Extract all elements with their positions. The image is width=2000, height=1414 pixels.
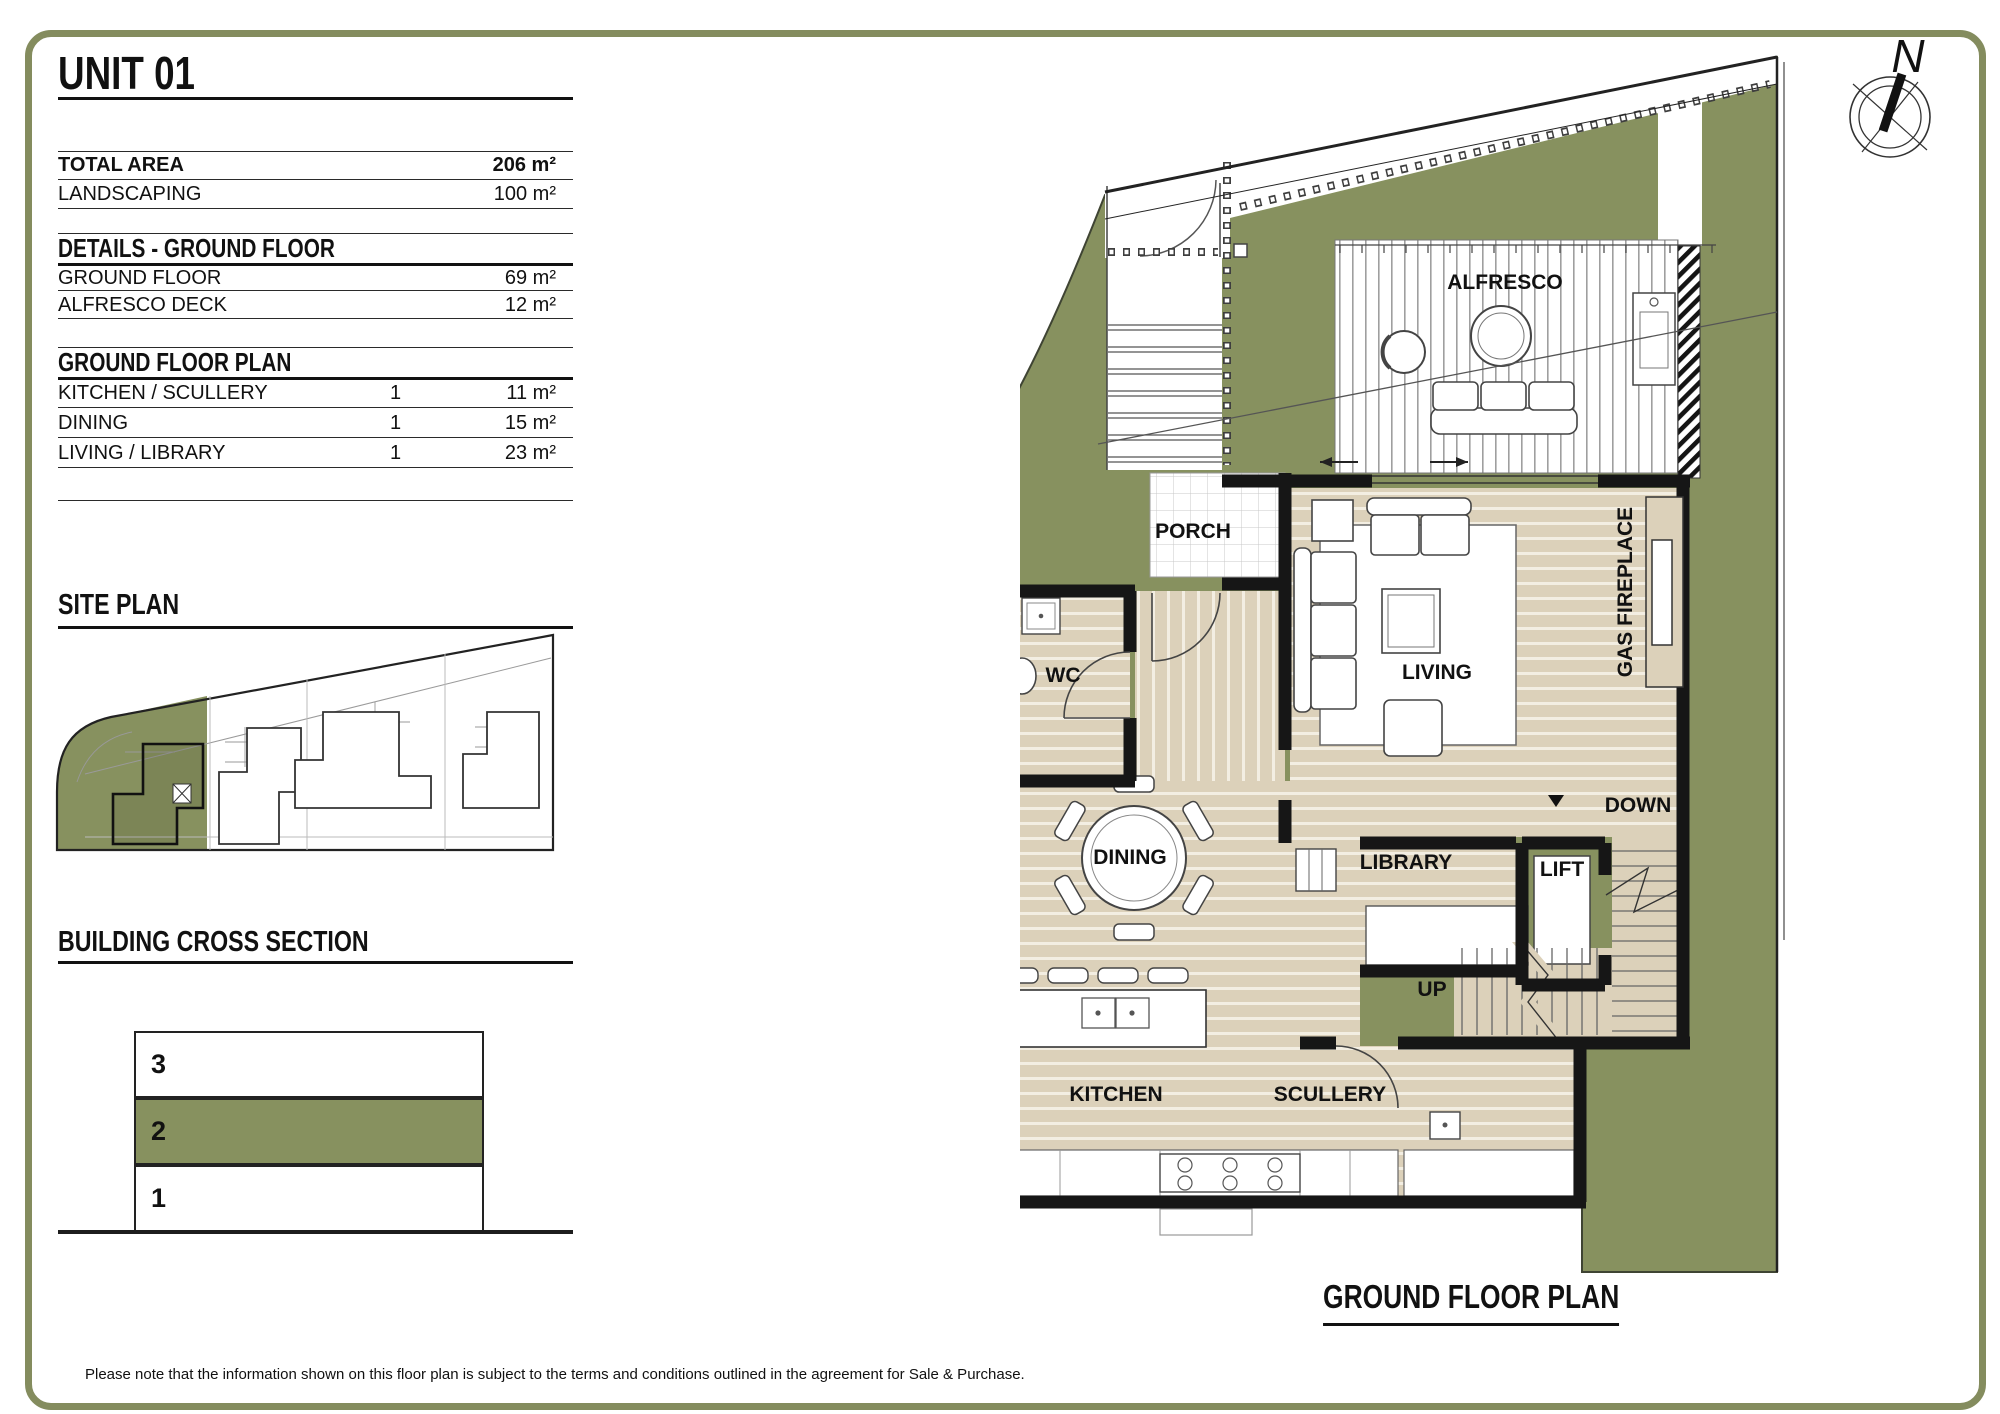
outdoor-sofa: [1431, 382, 1577, 434]
floor-plan-drawing: ALFRESCO PORCH WC LIVING GAS FIREPLACE D…: [1020, 40, 1960, 1290]
details-value: 69 m²: [505, 266, 556, 290]
schedule-header: GROUND FLOOR PLAN: [58, 347, 350, 378]
summary-value: 100 m²: [494, 182, 556, 206]
schedule-qty: 1: [390, 441, 401, 465]
cross-section-level-1: 1: [134, 1165, 484, 1232]
hall-floor: [1135, 591, 1285, 781]
details-label: ALFRESCO DECK: [58, 293, 227, 317]
kitchen-counter: [1020, 1150, 1398, 1196]
site-unit-3: [295, 712, 431, 808]
cross-section-drawing: 3 2 1: [134, 1031, 484, 1232]
fireplace: [1646, 497, 1683, 687]
title-underline: [58, 97, 573, 100]
schedule-value: 23 m²: [505, 441, 556, 465]
compass-n-label: N: [1891, 40, 1925, 82]
summary-label: TOTAL AREA: [58, 153, 184, 177]
rule: [58, 437, 573, 438]
schedule-value: 15 m²: [505, 411, 556, 435]
room-label-scullery: SCULLERY: [1274, 1083, 1386, 1106]
schedule-value: 11 m²: [506, 381, 556, 405]
kitchen-island: [1020, 990, 1206, 1047]
details-value: 12 m²: [505, 293, 556, 317]
room-label-porch: PORCH: [1155, 520, 1231, 543]
rule: [58, 500, 573, 501]
details-header: DETAILS - GROUND FLOOR: [58, 233, 404, 264]
external-bench: [1160, 1209, 1252, 1235]
details-row: GROUND FLOOR 69 m²: [58, 266, 556, 290]
rule: [58, 179, 573, 180]
footer-note: Please note that the information shown o…: [85, 1366, 1025, 1383]
floor-plan-title: GROUND FLOOR PLAN: [1286, 1278, 1646, 1326]
library-shelf: [1296, 849, 1336, 891]
cross-section-header: BUILDING CROSS SECTION: [58, 926, 446, 959]
room-label-library: LIBRARY: [1360, 851, 1453, 874]
brochure-page: UNIT 01 TOTAL AREA 206 m² LANDSCAPING 10…: [0, 0, 2000, 1414]
scullery-counter: [1404, 1150, 1574, 1196]
rule: [58, 377, 573, 380]
room-label-lift: LIFT: [1540, 858, 1584, 881]
room-label-wc: WC: [1046, 664, 1081, 687]
site-unit-2: [219, 728, 301, 844]
rule: [58, 626, 573, 629]
cross-section-level-2: 2: [134, 1098, 484, 1165]
unit-title: UNIT 01: [58, 46, 229, 100]
room-label-down: DOWN: [1605, 794, 1672, 817]
room-label-kitchen: KITCHEN: [1069, 1083, 1162, 1106]
schedule-label: KITCHEN / SCULLERY: [58, 381, 268, 405]
summary-row: LANDSCAPING 100 m²: [58, 182, 556, 206]
room-label-dining: DINING: [1093, 846, 1167, 869]
retaining-wall-hatch: [1678, 246, 1700, 478]
details-label: GROUND FLOOR: [58, 266, 221, 290]
rule: [58, 407, 573, 408]
summary-row: TOTAL AREA 206 m²: [58, 153, 556, 177]
rule: [58, 961, 573, 964]
rule: [58, 290, 573, 291]
down-stair-floor: [1612, 837, 1683, 1037]
outdoor-table: [1471, 306, 1531, 366]
schedule-row: LIVING / LIBRARY 1 23 m²: [58, 441, 556, 465]
rule: [58, 151, 573, 152]
schedule-qty: 1: [390, 381, 401, 405]
rule: [58, 467, 573, 468]
schedule-row: DINING 1 15 m²: [58, 411, 556, 435]
site-unit-4: [463, 712, 539, 808]
summary-label: LANDSCAPING: [58, 182, 201, 206]
entry-landing: [1107, 186, 1222, 470]
room-label-up: UP: [1417, 978, 1446, 1001]
site-plan-header: SITE PLAN: [58, 589, 209, 622]
schedule-qty: 1: [390, 411, 401, 435]
schedule-row: KITCHEN / SCULLERY 1 11 m²: [58, 381, 556, 405]
gate-post: [1234, 244, 1247, 257]
cross-section-ground-line: [58, 1230, 573, 1234]
room-label-living: LIVING: [1402, 661, 1472, 684]
schedule-label: DINING: [58, 411, 128, 435]
wc-basin: [1022, 598, 1060, 634]
details-row: ALFRESCO DECK 12 m²: [58, 293, 556, 317]
site-plan-drawing: [55, 632, 575, 856]
north-compass-icon: N: [1850, 40, 1930, 157]
rule: [58, 318, 573, 319]
cross-section-level-3: 3: [134, 1031, 484, 1098]
room-label-gas-fireplace: GAS FIREPLACE: [1614, 507, 1637, 677]
rule: [58, 208, 573, 209]
room-label-alfresco: ALFRESCO: [1447, 271, 1563, 294]
summary-value: 206 m²: [493, 153, 556, 177]
schedule-label: LIVING / LIBRARY: [58, 441, 225, 465]
library-bench: [1366, 906, 1528, 965]
scullery-sink-dot: [1443, 1123, 1448, 1128]
coffee-table: [1382, 589, 1440, 653]
